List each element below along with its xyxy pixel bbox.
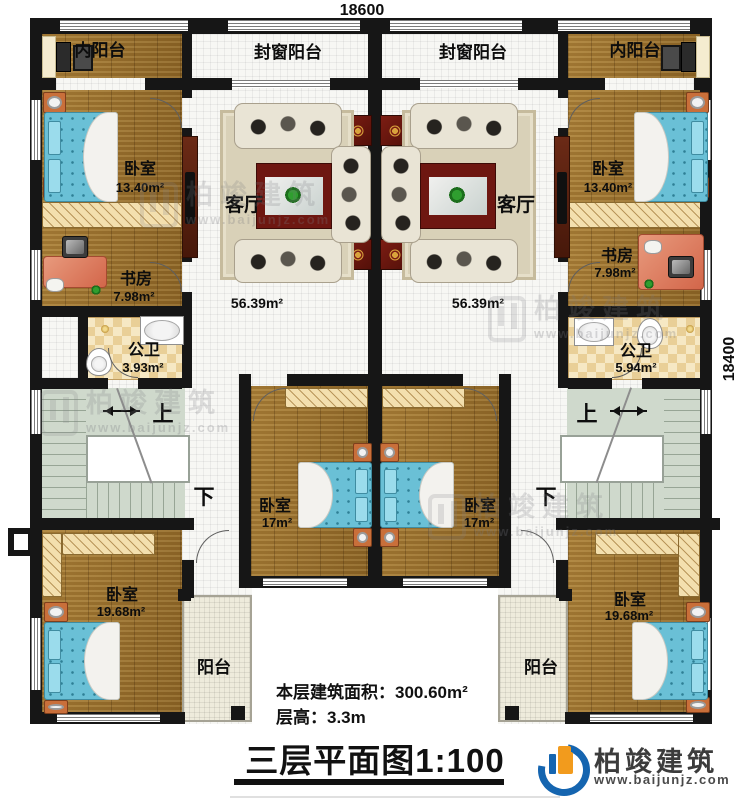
plant-symbol <box>643 278 655 290</box>
room-label-balcony-left: 阳台 <box>197 659 231 676</box>
pillow <box>691 663 704 693</box>
wall <box>563 518 720 530</box>
duvet <box>298 462 333 528</box>
wardrobe-symbol <box>42 533 62 597</box>
room-label-living-left: 客厅 <box>225 196 263 215</box>
nightstand-symbol <box>380 528 399 547</box>
stair-direction-arrow <box>610 410 647 412</box>
room-label-bedroom-mid-left: 卧室 <box>259 499 291 515</box>
bed-symbol <box>634 112 708 202</box>
wall <box>42 78 56 90</box>
sofa-symbol <box>410 239 518 283</box>
cabinet-symbol <box>56 42 71 72</box>
pillow <box>48 663 61 693</box>
wall <box>78 306 88 389</box>
duvet <box>84 622 120 700</box>
nightstand-symbol <box>686 602 710 622</box>
brand-logo-building <box>567 752 573 774</box>
duvet <box>632 622 668 700</box>
pillow <box>355 497 368 522</box>
bed-symbol <box>44 622 120 700</box>
stair-steps <box>42 388 86 518</box>
brand-logo-icon <box>536 740 588 792</box>
wall <box>287 374 368 386</box>
wall <box>568 378 612 389</box>
sink-symbol <box>574 318 614 346</box>
nightstand-symbol <box>44 700 68 714</box>
cabinet-symbol <box>696 36 710 78</box>
wardrobe-symbol <box>285 388 368 408</box>
room-label-study-right: 书房 <box>601 249 633 265</box>
wall <box>42 378 108 389</box>
room-area-bedroom-mid-left: 17m² <box>262 516 292 529</box>
wardrobe-symbol <box>42 202 182 228</box>
pillow <box>384 469 397 494</box>
room-area-bedroom-top-left: 13.40m² <box>116 181 164 194</box>
wardrobe-symbol <box>382 388 465 408</box>
room-label-enclosed-balcony-left: 封窗阳台 <box>254 44 322 61</box>
tv-symbol <box>185 172 195 224</box>
stair-up-label-left: 上 <box>153 404 174 425</box>
wardrobe-symbol <box>568 202 708 228</box>
window <box>57 714 160 722</box>
title-underline <box>234 779 504 785</box>
plant-symbol <box>447 185 467 205</box>
wall <box>558 34 568 98</box>
room-area-bathroom-right: 5.94m² <box>615 361 656 374</box>
room-area-living-right: 56.39m² <box>452 296 504 310</box>
room-label-bedroom-bottom-left: 卧室 <box>106 588 138 604</box>
window <box>31 100 41 160</box>
pillow <box>691 121 704 155</box>
room-label-bedroom-top-left: 卧室 <box>124 162 156 178</box>
wall <box>694 78 708 90</box>
room-area-study-left: 7.98m² <box>113 290 154 303</box>
wall <box>499 374 511 588</box>
wall <box>185 78 232 90</box>
pillow <box>691 159 704 193</box>
wall <box>505 706 519 720</box>
room-label-living-right: 客厅 <box>497 196 535 215</box>
room-area-bedroom-mid-right: 17m² <box>464 516 494 529</box>
nightstand-symbol <box>43 92 66 113</box>
room-area-bedroom-bottom-right: 19.68m² <box>605 609 653 622</box>
dimension-height: 18400 <box>721 329 739 389</box>
computer-monitor-symbol <box>62 236 88 258</box>
window <box>590 714 693 722</box>
room-label-bathroom-right: 公卫 <box>620 344 652 360</box>
pillow <box>48 630 61 660</box>
stair-up-label-right: 上 <box>577 404 598 425</box>
duvet <box>83 112 118 202</box>
wall <box>138 378 182 389</box>
pillow <box>355 469 368 494</box>
brand-logo-building <box>549 754 556 774</box>
cabinet-symbol <box>42 36 56 78</box>
nightstand-symbol <box>353 443 372 462</box>
plant-symbol <box>283 185 303 205</box>
stair-direction-arrow <box>103 410 140 412</box>
wall <box>182 518 194 530</box>
room-area-living-left: 56.39m² <box>231 296 283 310</box>
window <box>31 390 41 434</box>
wall <box>556 518 568 530</box>
pillow <box>691 630 704 660</box>
wall <box>568 306 708 317</box>
page-title: 三层平面图1:100 <box>245 734 504 782</box>
floor-plan: 18600 18400 封窗阳台 封窗阳台 内阳台 内阳台 卧室 13.40m²… <box>0 0 750 805</box>
wardrobe-symbol <box>62 533 155 555</box>
wall <box>565 78 605 90</box>
bed-symbol <box>632 622 708 700</box>
sliding-door <box>420 80 518 88</box>
bed-symbol <box>380 462 454 528</box>
duvet <box>634 112 669 202</box>
stair-steps <box>565 483 664 518</box>
cabinet-symbol <box>681 42 696 72</box>
bed-symbol <box>44 112 118 202</box>
dimension-width: 18600 <box>340 2 385 20</box>
divider-line <box>230 796 560 798</box>
sink-symbol <box>140 316 184 345</box>
wall <box>182 34 192 98</box>
wall <box>145 78 185 90</box>
tv-cabinet-symbol <box>182 136 198 258</box>
window <box>403 578 487 586</box>
room-label-bedroom-bottom-right: 卧室 <box>614 593 646 609</box>
brand-website: www.baijunjz.com <box>594 772 730 787</box>
wall <box>556 560 568 598</box>
room-label-study-left: 书房 <box>120 272 152 288</box>
wall <box>330 78 420 90</box>
pillow <box>48 159 61 193</box>
window <box>228 20 360 31</box>
room-label-inner-balcony-right: 内阳台 <box>610 42 661 59</box>
chimney-mark-inner <box>14 534 28 550</box>
sofa-symbol <box>410 103 518 149</box>
room-label-bedroom-top-right: 卧室 <box>592 162 624 178</box>
window <box>558 20 690 31</box>
room-label-enclosed-balcony-right: 封窗阳台 <box>439 44 507 61</box>
ceiling-light-symbol <box>101 325 109 333</box>
wall <box>239 374 251 588</box>
sofa-symbol <box>234 103 342 149</box>
stair-steps <box>86 483 185 518</box>
pillow <box>384 497 397 522</box>
cabinet-symbol <box>661 45 681 71</box>
stair-down-label-left: 下 <box>194 487 215 508</box>
pillow <box>48 121 61 155</box>
wall <box>182 560 194 598</box>
floor-height-text: 层高：3.3m <box>276 703 366 728</box>
window <box>390 20 522 31</box>
nightstand-symbol <box>353 528 372 547</box>
bed-symbol <box>298 462 372 528</box>
ceiling-light-symbol <box>686 325 694 333</box>
wall <box>558 292 568 388</box>
nightstand-symbol <box>686 92 709 113</box>
chair-symbol <box>46 278 64 292</box>
wall <box>231 706 245 720</box>
window <box>263 578 347 586</box>
nightstand-symbol <box>380 443 399 462</box>
room-label-bedroom-mid-right: 卧室 <box>464 499 496 515</box>
window <box>60 20 188 31</box>
room-area-bedroom-top-right: 13.40m² <box>584 181 632 194</box>
window <box>31 618 41 690</box>
room-area-bathroom-left: 3.93m² <box>122 361 163 374</box>
sofa-symbol <box>381 146 421 243</box>
room-label-bathroom-left: 公卫 <box>128 343 160 359</box>
room-area-bedroom-bottom-left: 19.68m² <box>97 605 145 618</box>
nightstand-symbol <box>44 602 68 622</box>
wall <box>642 378 712 389</box>
duvet <box>419 462 454 528</box>
wall <box>30 518 187 530</box>
window <box>31 250 41 300</box>
sofa-symbol <box>331 146 371 243</box>
room-area-study-right: 7.98m² <box>594 266 635 279</box>
chair-symbol <box>644 240 662 254</box>
wall <box>382 374 463 386</box>
tv-symbol <box>557 172 567 224</box>
tv-cabinet-symbol <box>554 136 570 258</box>
window <box>701 390 711 434</box>
room-label-balcony-right: 阳台 <box>524 659 558 676</box>
wardrobe-symbol <box>595 533 680 555</box>
room-label-inner-balcony-left: 内阳台 <box>75 42 126 59</box>
building-area-text: 本层建筑面积：300.60m² <box>276 678 468 703</box>
stair-down-label-right: 下 <box>536 487 557 508</box>
wardrobe-symbol <box>678 533 700 597</box>
sliding-door <box>232 80 330 88</box>
computer-monitor-symbol <box>668 256 694 278</box>
sofa-symbol <box>234 239 342 283</box>
plant-symbol <box>90 284 102 296</box>
